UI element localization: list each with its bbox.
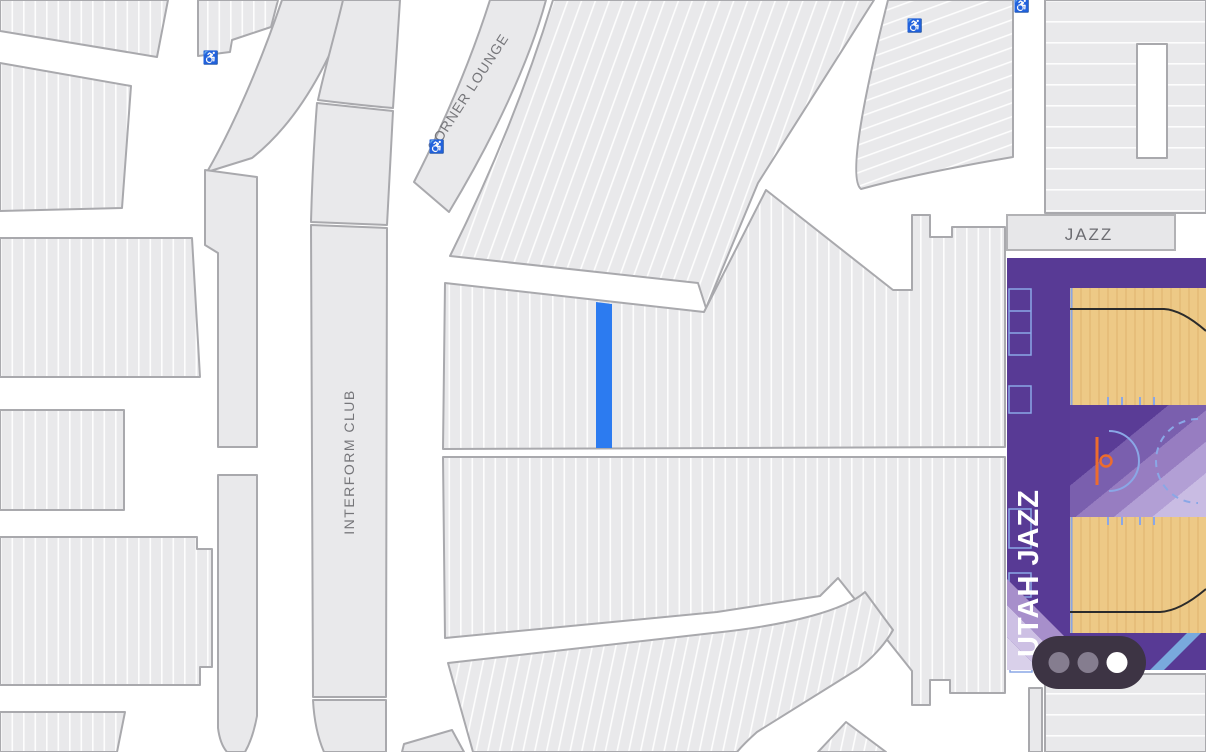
pager-dot[interactable]: [1049, 652, 1070, 673]
interform-club-label: INTERFORM CLUB: [341, 389, 357, 534]
section-cutout: [1137, 44, 1167, 158]
end-zone-label: JAZZ: [1065, 225, 1114, 244]
page-indicator[interactable]: [1032, 636, 1146, 689]
club-band-segment[interactable]: [311, 103, 393, 225]
pager-dot-active[interactable]: [1107, 652, 1128, 673]
seating-section[interactable]: [0, 410, 124, 510]
seating-section[interactable]: [0, 537, 212, 685]
wheelchair-icon: ♿: [907, 18, 923, 33]
seating-section[interactable]: [0, 712, 125, 752]
seating-section[interactable]: [0, 238, 200, 377]
seating-section[interactable]: [0, 0, 168, 57]
court-graphic: UTAH JAZZ: [1007, 258, 1206, 672]
aisle-section[interactable]: [218, 475, 257, 752]
wheelchair-icon: ♿: [1014, 0, 1030, 13]
wheelchair-icon: ♿: [203, 50, 219, 65]
pager-dot[interactable]: [1078, 652, 1099, 673]
seating-section[interactable]: [1045, 0, 1206, 213]
seating-section[interactable]: [402, 730, 464, 752]
aisle-section[interactable]: [1029, 688, 1042, 752]
seat-map-viewport[interactable]: CORNER LOUNGE INTERFORM CLUB ♿ ♿ ♿ ♿ JAZ…: [0, 0, 1206, 752]
seating-section[interactable]: [0, 63, 131, 211]
aisle-section[interactable]: [205, 170, 257, 447]
selected-row-highlight[interactable]: [596, 302, 612, 448]
seating-section[interactable]: [856, 0, 1013, 189]
court-team-label: UTAH JAZZ: [1013, 489, 1045, 657]
end-zone-label-box: JAZZ: [1007, 215, 1175, 250]
wheelchair-icon: ♿: [429, 139, 445, 154]
seating-section[interactable]: [818, 722, 886, 752]
seat-map: CORNER LOUNGE INTERFORM CLUB ♿ ♿ ♿ ♿ JAZ…: [0, 0, 1206, 752]
club-band-segment[interactable]: [313, 700, 386, 752]
